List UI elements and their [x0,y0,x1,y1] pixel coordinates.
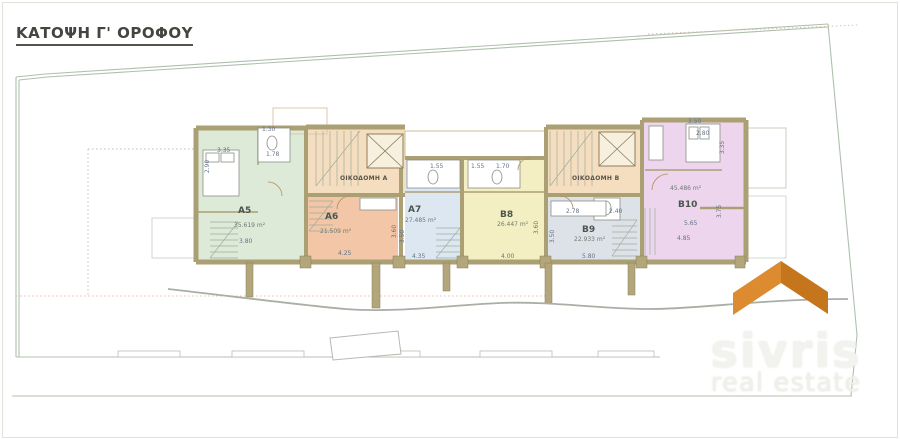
unit-b10-area: 45.486 m² [670,185,701,192]
dim-label: 3.50 [549,230,556,243]
dim-label: 3.60 [391,225,398,238]
dim-label: 1.70 [496,163,509,170]
unit-b8-area: 26.447 m² [497,221,528,228]
dim-label: 2.80 [696,130,709,137]
dim-label: 2.78 [566,208,579,215]
dim-label: 5.80 [582,253,595,260]
building-a-label: ΟΙΚΟΔΟΜΗ Α [340,175,388,182]
unit-a6-area: 21.509 m² [320,228,351,235]
dim-label: 3.50 [688,118,701,125]
unit-a7-label: A7 [408,205,421,215]
dim-label: 5.65 [684,220,697,227]
logo-tagline: real estate [697,368,875,398]
logo-roof-icon [733,261,828,315]
unit-a6-label: A6 [325,212,338,222]
dim-label: 2.90 [204,160,211,173]
unit-b9-label: B9 [582,225,595,235]
floor-plan-page: ΚΑΤΟΨΗ Γ' ΟΡΟΦΟΥ [0,0,900,439]
dim-label: 3.35 [719,141,726,154]
unit-a5-area: 35.619 m² [234,222,265,229]
unit-b8-label: B8 [500,210,513,220]
unit-a7-area: 27.485 m² [405,217,436,224]
dim-label: 1.55 [471,163,484,170]
dim-label: 4.35 [412,253,425,260]
dim-label: 3.35 [217,147,230,154]
dim-label: 3.80 [239,238,252,245]
unit-b9-area: 22.933 m² [574,236,605,243]
dim-label: 4.00 [501,253,514,260]
dim-label: 1.30 [262,126,275,133]
dim-label: 3.50 [399,230,406,243]
dim-label: 3.60 [533,221,540,234]
building-b-label: ΟΙΚΟΔΟΜΗ Β [572,175,619,182]
dim-label: 4.85 [677,235,690,242]
dim-label: 1.78 [266,151,279,158]
unit-b10-label: B10 [678,200,697,210]
dim-label: 1.55 [430,163,443,170]
unit-a5-label: A5 [238,206,251,216]
dim-label: 2.40 [609,208,622,215]
dim-label: 4.25 [338,250,351,257]
dim-label: 3.75 [716,205,723,218]
